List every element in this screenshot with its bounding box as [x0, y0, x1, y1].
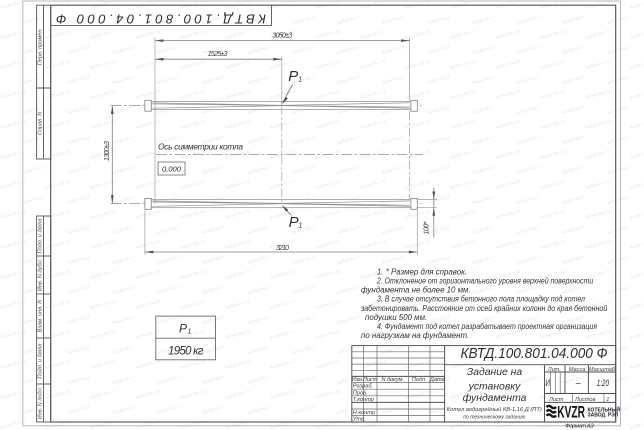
svg-text:P: P [288, 68, 298, 85]
svg-text:Перв. примен.: Перв. примен. [37, 28, 43, 65]
svg-text:ЗАВОД. РЭП: ЗАВОД. РЭП [588, 413, 619, 419]
svg-text:Т.контр: Т.контр [353, 397, 374, 403]
svg-text:1300±3: 1300±3 [102, 141, 111, 161]
svg-text:Лист: Лист [548, 397, 564, 403]
svg-text:KVZR: KVZR [557, 403, 585, 421]
svg-text:1. * Размер для справок.: 1. * Размер для справок. [377, 267, 467, 276]
svg-text:Разраб.: Разраб. [353, 384, 373, 390]
svg-text:Масштаб: Масштаб [589, 367, 616, 373]
svg-text:Масса: Масса [569, 367, 586, 373]
svg-text:Инв. N подл.: Инв. N подл. [37, 387, 43, 420]
svg-text:3210: 3210 [276, 243, 289, 252]
svg-text:Подп.: Подп. [412, 377, 427, 383]
svg-text:P: P [179, 321, 187, 335]
svg-text:КВТД.100.801.04.000 Ф: КВТД.100.801.04.000 Ф [461, 345, 608, 362]
svg-text:И: И [545, 378, 550, 388]
svg-text:по техническому заданию: по техническому заданию [463, 415, 526, 421]
svg-text:100*: 100* [422, 221, 431, 234]
svg-text:установку: установку [468, 382, 522, 393]
svg-text:1: 1 [606, 397, 609, 403]
svg-text:1:20: 1:20 [597, 378, 609, 388]
svg-text:Задание на: Задание на [467, 367, 523, 378]
svg-text:Котел водогрейный КВ-1,16 Д (: Котел водогрейный КВ-1,16 Д (ПТ) [447, 406, 542, 413]
svg-text:Взам. инв. N: Взам. инв. N [37, 299, 43, 333]
svg-text:0,000: 0,000 [162, 164, 182, 173]
svg-text:Листов: Листов [574, 397, 595, 403]
svg-text:подушки 500 мм.: подушки 500 мм. [365, 313, 427, 322]
svg-text:1: 1 [298, 77, 302, 84]
svg-text:1: 1 [188, 329, 192, 336]
svg-text:1525±3: 1525±3 [208, 49, 228, 58]
svg-text:Изм.: Изм. [352, 377, 364, 383]
svg-text:–: – [575, 378, 582, 388]
svg-text:Лист: Лист [362, 377, 378, 383]
svg-text:Инв. N дубл.: Инв. N дубл. [37, 259, 43, 291]
svg-text:фундамента не более 10 мм.: фундамента не более 10 мм. [361, 286, 471, 295]
svg-text:Подп. и дата: Подп. и дата [37, 218, 43, 253]
svg-text:N докум.: N докум. [381, 377, 404, 383]
svg-text:забетонировать. Расстояние от: забетонировать. Расстояние от осей крайн… [360, 304, 608, 313]
svg-text:Формат А3: Формат А3 [565, 423, 594, 429]
svg-text:Дата: Дата [429, 377, 445, 383]
svg-text:по нагрузкам на фундамент.: по нагрузкам на фундамент. [361, 331, 469, 340]
svg-text:1950 кг: 1950 кг [168, 346, 204, 358]
svg-text:Н.контр: Н.контр [353, 410, 375, 416]
svg-text:1: 1 [299, 223, 303, 230]
svg-text:2. Отклонение от горизонтально: 2. Отклонение от горизонтального уровня … [376, 277, 594, 286]
svg-text:3. В случае отсутствия бетонно: 3. В случае отсутствия бетонного пола пл… [377, 295, 585, 304]
svg-text:Лит.: Лит. [547, 367, 561, 373]
svg-text:Подп. и дата: Подп. и дата [37, 343, 43, 378]
svg-text:фундамента: фундамента [463, 392, 527, 404]
svg-text:Справ. N: Справ. N [37, 111, 43, 135]
svg-text:Утв.: Утв. [352, 416, 366, 422]
svg-text:3050±3: 3050±3 [272, 31, 292, 40]
svg-text:Ось симметрии котла: Ось симметрии котла [158, 142, 243, 152]
svg-text:4. Фундамент под котел разраба: 4. Фундамент под котел разрабатывает про… [377, 322, 598, 331]
svg-text:P: P [289, 214, 299, 231]
svg-text:Пров.: Пров. [353, 390, 368, 396]
